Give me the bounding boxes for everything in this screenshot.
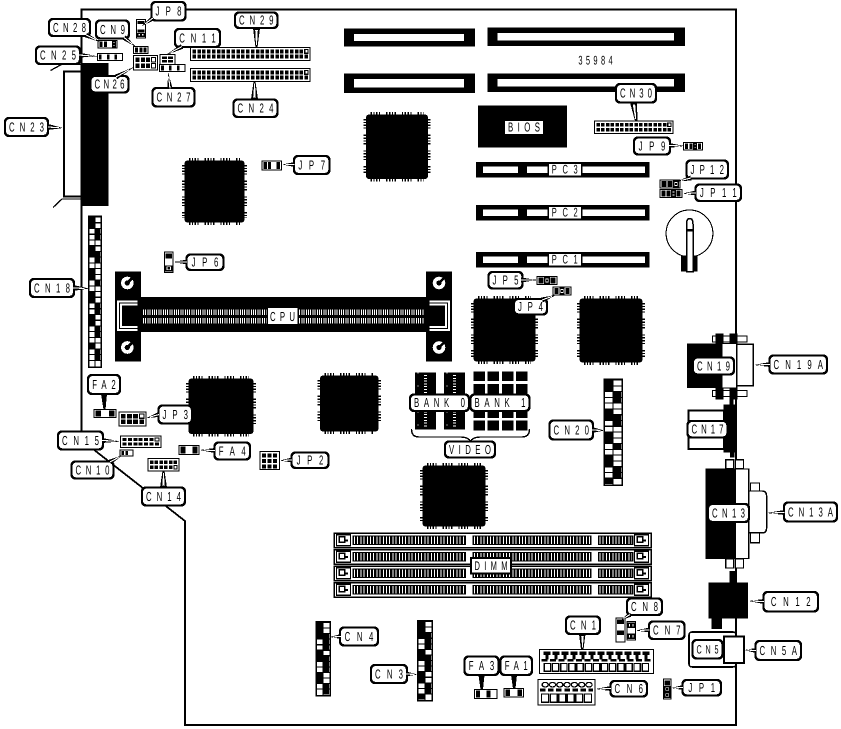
svg-text:CN26: CN26 [95, 77, 128, 92]
svg-text:CN23: CN23 [9, 119, 49, 134]
svg-text:CN19A: CN19A [774, 357, 830, 372]
svg-text:PC2: PC2 [552, 206, 584, 220]
svg-text:CN14: CN14 [146, 489, 186, 504]
svg-text:VIDEO: VIDEO [449, 442, 495, 457]
svg-text:BANK 1: BANK 1 [475, 395, 531, 410]
svg-text:CN27: CN27 [157, 90, 196, 105]
svg-text:CPU: CPU [270, 309, 299, 324]
svg-text:JP7: JP7 [298, 157, 331, 172]
svg-text:CN10: CN10 [76, 462, 115, 477]
svg-text:35984: 35984 [578, 54, 616, 68]
svg-text:CN30: CN30 [620, 86, 656, 101]
svg-text:CN3: CN3 [375, 666, 409, 681]
svg-text:CN9: CN9 [100, 22, 130, 37]
svg-text:PC1: PC1 [552, 253, 584, 267]
svg-text:FA2: FA2 [92, 377, 120, 392]
svg-text:CN19: CN19 [697, 358, 734, 373]
svg-text:JP12: JP12 [691, 162, 730, 177]
svg-text:BIOS: BIOS [508, 120, 544, 135]
svg-text:CN5A: CN5A [760, 643, 803, 658]
svg-text:CN17: CN17 [692, 422, 728, 437]
svg-text:CN5: CN5 [696, 642, 722, 656]
svg-text:CN13A: CN13A [788, 504, 838, 519]
svg-text:DIMM: DIMM [474, 559, 511, 573]
svg-text:CN18: CN18 [34, 280, 75, 295]
svg-text:CN1: CN1 [570, 618, 601, 633]
svg-text:JP1: JP1 [688, 680, 721, 695]
svg-text:CN29: CN29 [239, 13, 278, 28]
svg-text:CN24: CN24 [238, 101, 279, 116]
svg-text:CN8: CN8 [631, 599, 664, 614]
svg-text:CN25: CN25 [40, 48, 81, 63]
svg-text:FA1: FA1 [505, 658, 533, 673]
svg-text:FA3: FA3 [469, 658, 500, 673]
svg-text:JP5: JP5 [493, 273, 525, 288]
svg-text:JP9: JP9 [639, 138, 672, 153]
svg-text:CN15: CN15 [62, 433, 105, 448]
svg-text:JP3: JP3 [163, 407, 194, 422]
svg-text:CN20: CN20 [554, 422, 595, 437]
svg-text:CN11: CN11 [179, 30, 221, 45]
svg-text:JP8: JP8 [156, 4, 188, 19]
svg-text:CN6: CN6 [614, 681, 649, 696]
svg-text:FA4: FA4 [219, 443, 253, 458]
svg-text:JP6: JP6 [192, 255, 225, 270]
svg-text:CN13: CN13 [712, 505, 749, 520]
svg-text:JP11: JP11 [700, 185, 743, 200]
svg-text:CN7: CN7 [653, 623, 686, 638]
svg-text:PC3: PC3 [552, 163, 584, 177]
svg-text:CN12: CN12 [771, 594, 817, 609]
svg-text:CN4: CN4 [345, 629, 380, 644]
svg-text:CN28: CN28 [53, 20, 90, 35]
svg-text:BANK 0: BANK 0 [414, 395, 470, 410]
svg-text:JP2: JP2 [297, 453, 330, 468]
